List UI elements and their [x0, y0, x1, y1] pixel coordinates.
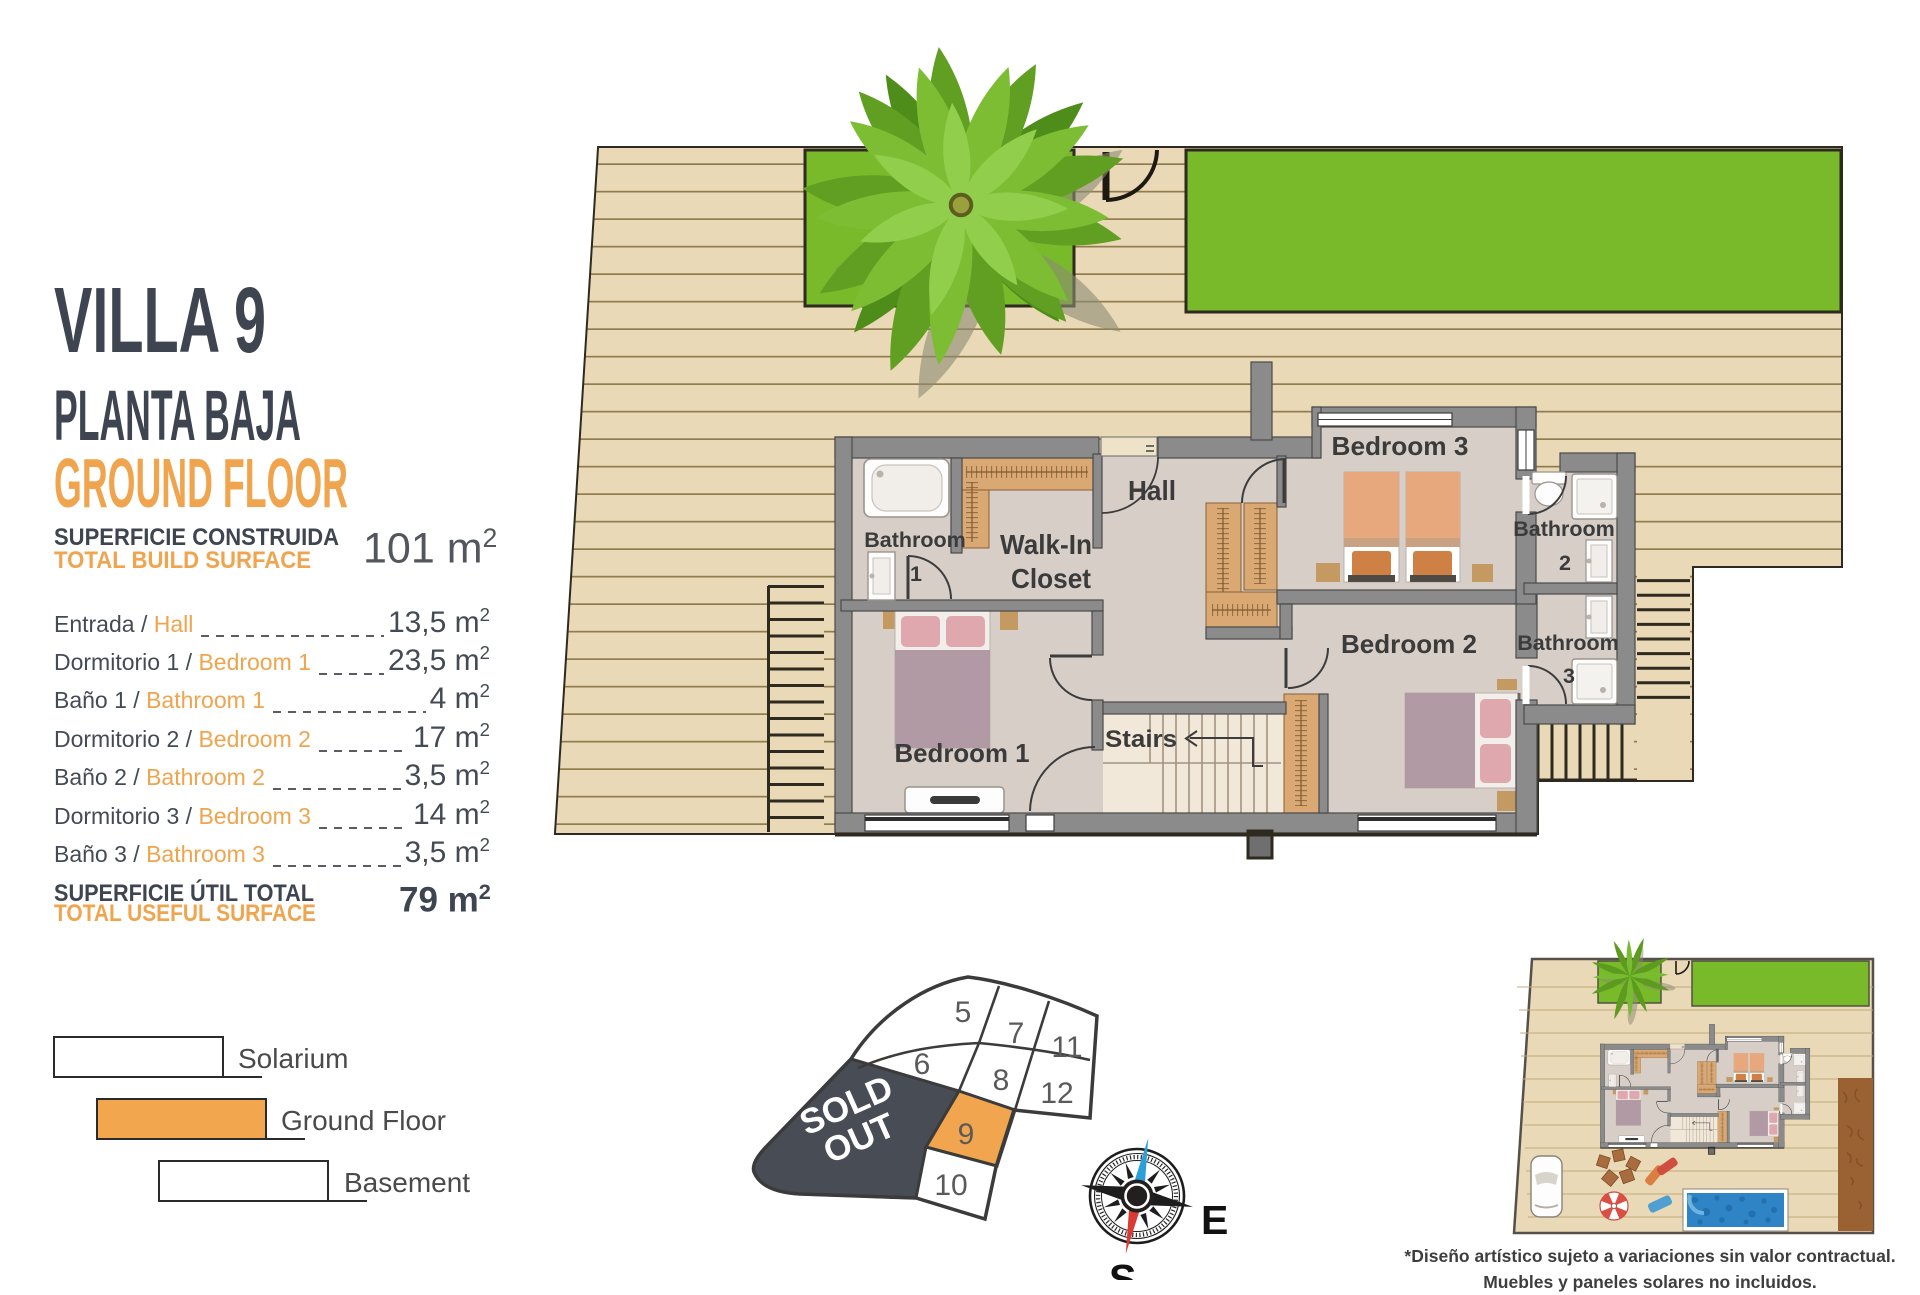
svg-text:6: 6 [914, 1048, 931, 1081]
svg-text:Bathroom: Bathroom [1517, 631, 1619, 655]
svg-text:8: 8 [993, 1064, 1010, 1097]
svg-text:Walk-In: Walk-In [1000, 529, 1092, 560]
svg-text:Bedroom 2: Bedroom 2 [1341, 629, 1477, 659]
svg-text:10: 10 [934, 1169, 967, 1202]
svg-text:Hall: Hall [1128, 475, 1176, 506]
svg-text:2: 2 [1559, 551, 1571, 575]
svg-text:Bathroom: Bathroom [864, 528, 966, 552]
svg-text:S: S [1109, 1256, 1136, 1280]
svg-text:7: 7 [1008, 1017, 1025, 1050]
svg-text:12: 12 [1040, 1077, 1073, 1110]
svg-text:11: 11 [1051, 1031, 1082, 1064]
svg-text:1: 1 [910, 562, 922, 586]
svg-text:E: E [1201, 1197, 1228, 1243]
svg-text:3: 3 [1563, 664, 1575, 688]
svg-text:Closet: Closet [1011, 563, 1091, 594]
svg-text:9: 9 [958, 1118, 975, 1151]
svg-text:5: 5 [955, 996, 972, 1029]
svg-text:Bathroom: Bathroom [1513, 517, 1615, 541]
svg-text:Stairs: Stairs [1105, 726, 1177, 753]
svg-text:Bedroom 1: Bedroom 1 [895, 738, 1030, 768]
svg-text:Bedroom 3: Bedroom 3 [1332, 431, 1469, 461]
